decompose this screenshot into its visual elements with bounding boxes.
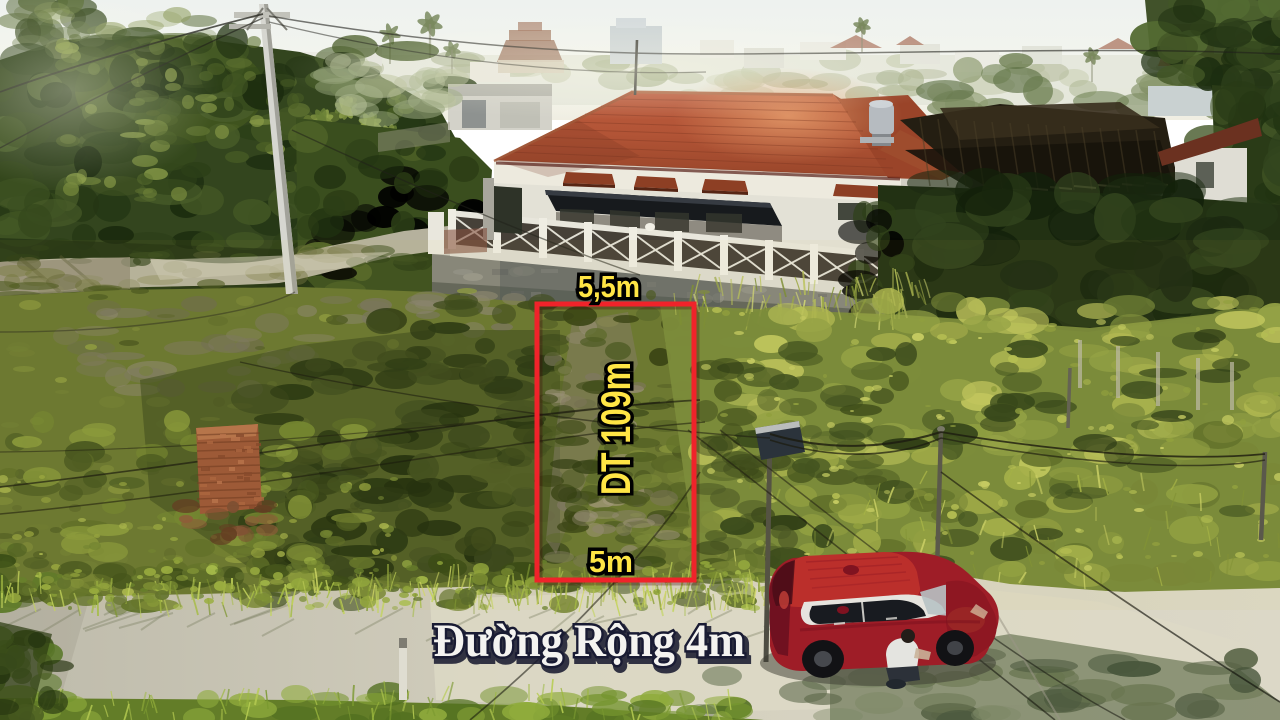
svg-text:5,5m: 5,5m — [578, 269, 640, 304]
svg-text:Đường Rộng 4m: Đường Rộng 4m — [433, 615, 745, 667]
svg-text:DT 109m: DT 109m — [592, 362, 639, 495]
svg-text:5m: 5m — [589, 544, 633, 579]
